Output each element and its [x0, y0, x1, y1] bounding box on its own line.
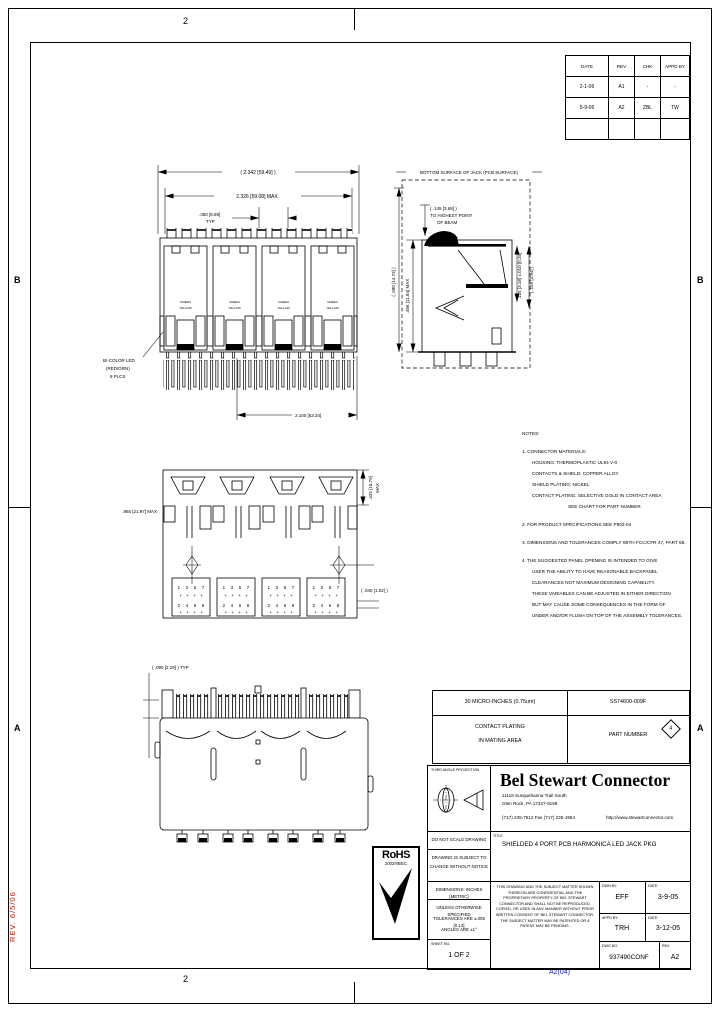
dwn-value: EFF	[599, 894, 645, 901]
svg-text:+ + + +: + + + +	[179, 610, 204, 615]
zone-number-bottom: 2	[183, 974, 188, 984]
plating-label-1: CONTACT PLATING	[433, 724, 567, 730]
svg-text:GREEN: GREEN	[229, 300, 240, 304]
svg-text:GREEN: GREEN	[180, 300, 191, 304]
svg-text:+ + + +: + + + +	[224, 610, 249, 615]
notes-title: NOTES:	[522, 428, 694, 439]
front-dim-overall: ( 2.342 [59.49] )	[240, 170, 276, 176]
dimensions-note: DIMENSIONS: INCHES [METRIC]	[428, 887, 490, 900]
drawing-sheet: B B A A 2 2 REV. 6/5/06 A2(04) DATE REV …	[0, 0, 720, 1012]
tolerance-note-3: ANGLES ARE ±1°	[428, 927, 490, 934]
svg-text:1 3 5 7: 1 3 5 7	[178, 585, 207, 590]
side-view: BOTTOM SURFACE OF JACK (PCB SURFACE) ( .…	[391, 170, 542, 368]
pcb-surface-label: BOTTOM SURFACE OF JACK (PCB SURFACE)	[420, 170, 518, 175]
rohs-checkmark-icon	[376, 866, 416, 926]
svg-text:YELLOW: YELLOW	[326, 306, 339, 310]
dwg-no: 937490CONF	[599, 954, 659, 961]
bottom-dim-right-mid: ( .040 [1.02] )	[361, 588, 388, 593]
svg-text:1 3 5 7: 1 3 5 7	[313, 585, 342, 590]
svg-text:YELLOW: YELLOW	[277, 306, 290, 310]
rev-label: REV.	[662, 944, 670, 948]
front-dim-pitch: .350 [8.89]	[199, 212, 220, 217]
rear-dim-typ: ( .090 [2.29] ) TYP	[152, 665, 189, 670]
plot-annotation: A2(04)	[549, 969, 570, 976]
appd-value: TRH	[599, 925, 645, 932]
projection-label: THIRD ANGLE PROJECTION	[431, 768, 489, 772]
zone-letter-a-left: A	[14, 723, 21, 733]
beam-dim-2: TO HIGHEST POINT	[430, 213, 473, 218]
company-website: http://www.stewartconnector.com	[606, 815, 673, 820]
svg-text:1 3 5 7: 1 3 5 7	[268, 585, 297, 590]
company-address-1: 11118 Susquehanna Trail South	[502, 793, 567, 798]
part-number-value: SS74600-009F	[567, 699, 689, 705]
company-address-2: Glen Rock, PA 17327-9199	[502, 801, 557, 806]
svg-text:GREEN: GREEN	[278, 300, 289, 304]
front-dim-body-max: 2.326 [59.08] MAX	[236, 194, 278, 200]
dwg-no-label: DWG NO.	[602, 944, 618, 948]
revision-stamp: REV. 6/5/06	[8, 832, 17, 942]
front-dim-pins: 2.100 [53.34]	[295, 413, 321, 418]
svg-text:2 4 6 8: 2 4 6 8	[178, 603, 207, 608]
rear-feet	[177, 830, 345, 842]
sheet-label: SHEET NO.	[431, 942, 450, 946]
led-callout-2: (RED/GRN)	[106, 366, 130, 371]
svg-text:GREEN: GREEN	[327, 300, 338, 304]
plating-value: 30 MICRO-INCHES (0.75um)	[433, 699, 567, 705]
zone-tick-bottom	[354, 982, 355, 1004]
front-pins	[163, 352, 355, 390]
zone-letter-b-right: B	[697, 275, 704, 285]
rev-value: A2	[659, 954, 691, 961]
beam-dim-3: OF BEAM	[437, 220, 458, 225]
rohs-name: RoHS	[374, 849, 418, 861]
bottom-view: 1 3 5 7 + + + + 2 4 6 8 + + + + 1 3 5 7 …	[122, 470, 388, 618]
zone-tick-left	[8, 507, 30, 508]
sheet-value: 1 OF 2	[428, 952, 490, 959]
svg-text:+ + + +: + + + +	[314, 610, 339, 615]
side-dim-left-outer: .466 [11.84] MAX	[405, 279, 410, 313]
led-callout-1: BI-COLOR LED	[103, 358, 136, 363]
svg-text:+ + + +: + + + +	[179, 593, 204, 598]
side-dim-left-inner: ( .580 [14.73] )	[391, 267, 396, 297]
rear-pin-comb	[170, 694, 352, 718]
zone-number-top: 2	[183, 16, 188, 26]
led-callout-3: 8 PLCS	[110, 374, 126, 379]
company-name: Bel Stewart Connector	[500, 770, 686, 791]
bottom-dim-left: .865 [21.97] MAX	[122, 509, 157, 514]
dwn-label: DWN BY:	[602, 884, 617, 888]
zone-tick-top	[354, 8, 355, 30]
drawing-title: SHIELDED 4 PORT PCB HARMONICA LED JACK P…	[502, 841, 688, 848]
dwn-date: 3-9-05	[645, 894, 691, 901]
svg-text:YELLOW: YELLOW	[179, 306, 192, 310]
svg-text:+ + + +: + + + +	[224, 593, 249, 598]
title-block: THIRD ANGLE PROJECTION Bel Stewart Conne…	[427, 765, 691, 970]
appd-date: 3-12-05	[645, 925, 691, 932]
legal-text: THIS DRAWING AND THE SUBJECT MATTER SHOW…	[494, 885, 596, 930]
front-view: ( 2.342 [59.49] ) 2.326 [59.08] MAX .350…	[103, 165, 359, 420]
bottom-dim-right-top: .425 [10.79]	[368, 476, 373, 500]
rear-view: ( .090 [2.29] ) TYP	[143, 665, 373, 842]
subject-to-change-2: CHANGE WITHOUT NOTICE	[428, 864, 490, 871]
svg-text:2 4 6 8: 2 4 6 8	[268, 603, 297, 608]
svg-text:+ + + +: + + + +	[269, 593, 294, 598]
svg-text:2 4 6 8: 2 4 6 8	[223, 603, 252, 608]
title-label: TITLE	[493, 834, 503, 838]
zone-letter-a-right: A	[697, 723, 704, 733]
bottom-dim-right-top-max: MAX	[375, 483, 380, 493]
zone-letter-b-left: B	[14, 275, 21, 285]
dwn-date-label: DATE:	[648, 884, 658, 888]
plating-label-2: IN MATING AREA	[433, 738, 567, 744]
appd-date-label: DATE:	[648, 916, 658, 920]
svg-text:+ + + +: + + + +	[269, 610, 294, 615]
company-phone: (717) 235-7512 Fax (717) 235-1964	[502, 815, 575, 820]
front-dim-pitch-typ: TYP	[206, 219, 215, 224]
svg-text:YELLOW: YELLOW	[228, 306, 241, 310]
appd-label: APPD BY:	[602, 916, 618, 920]
beam-dim-1: ( .145 [3.68] )	[430, 206, 457, 211]
subject-to-change-1: DRAWING IS SUBJECT TO	[428, 855, 490, 862]
svg-text:+ + + +: + + + +	[314, 593, 339, 598]
svg-text:1 3 5 7: 1 3 5 7	[223, 585, 252, 590]
do-not-scale: DO NOT SCALE DRAWING	[428, 837, 490, 844]
side-dim-right-outer: ( .155 [3.94] )	[529, 266, 534, 293]
svg-text:2 4 6 8: 2 4 6 8	[313, 603, 342, 608]
third-angle-projection-icon	[431, 782, 487, 818]
latch-beam	[424, 231, 459, 246]
side-dim-right-inner: .125 [3.18] ±.010 [0.25]	[517, 253, 522, 299]
notes-block: NOTES: 1. CONNECTOR MATERIALS: HOUSING: …	[522, 428, 694, 621]
rohs-stamp: RoHS 2002/95/EC	[372, 846, 420, 940]
part-number-chart: 30 MICRO-INCHES (0.75um) SS74600-009F CO…	[432, 690, 690, 764]
